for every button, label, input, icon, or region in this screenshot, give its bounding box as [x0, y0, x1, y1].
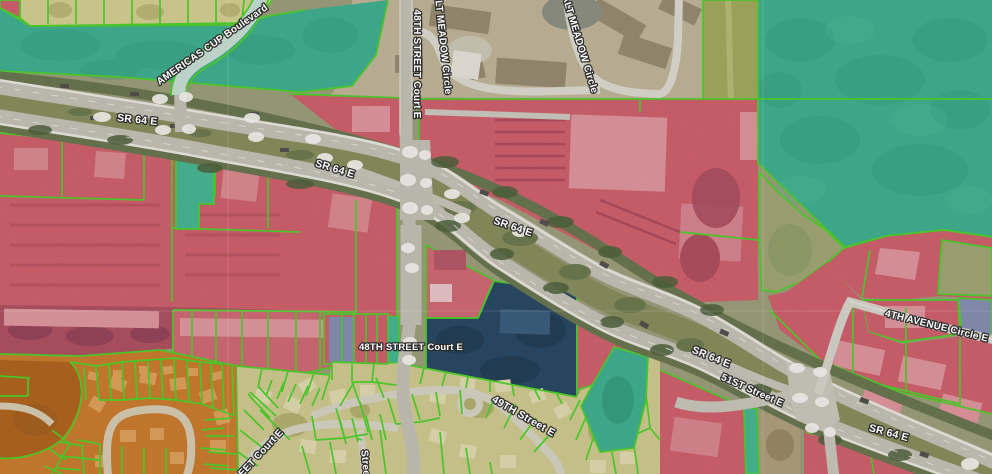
- svg-text:Street E: Street E: [358, 450, 372, 474]
- svg-text:48TH STREET Court E: 48TH STREET Court E: [359, 342, 463, 353]
- svg-text:48TH STREET Court E: 48TH STREET Court E: [411, 9, 422, 118]
